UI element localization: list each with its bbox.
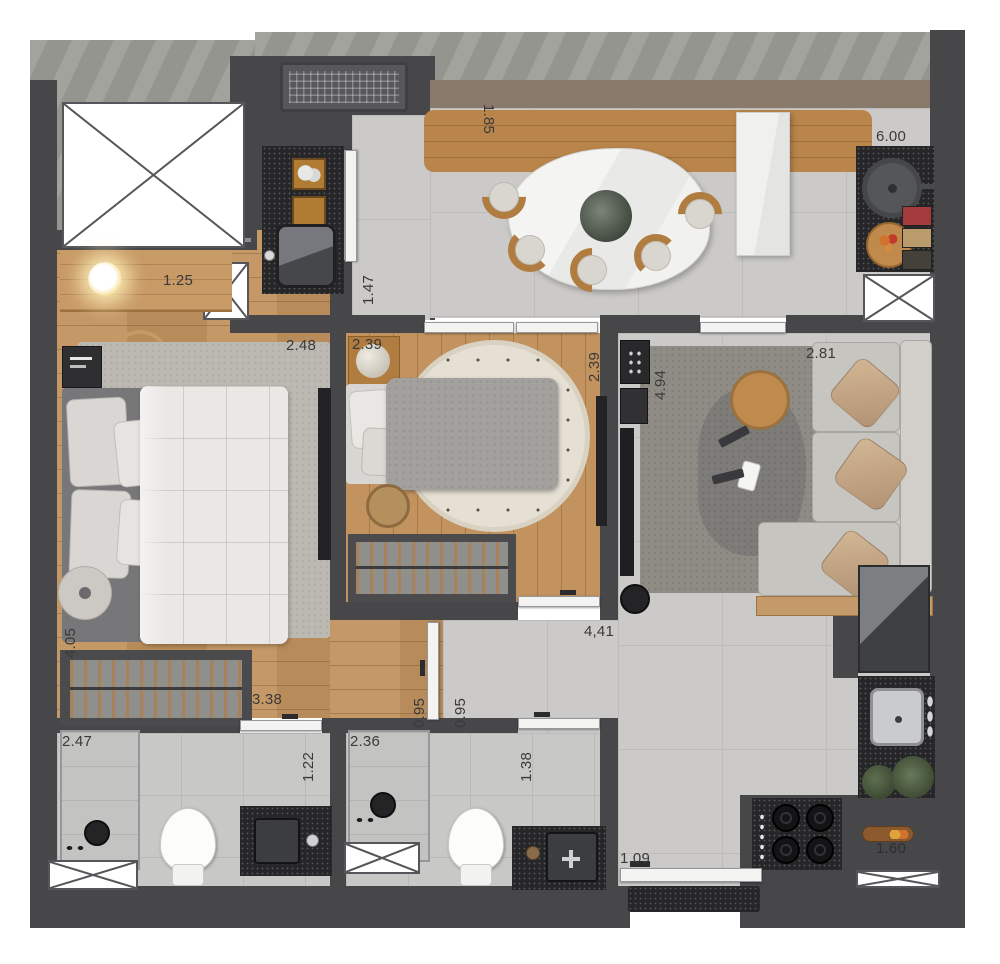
vanity2-soap <box>526 846 540 860</box>
fridge-mirror-cabinet <box>858 565 930 673</box>
shower-valves <box>64 844 86 852</box>
cooktop-burner <box>806 836 834 864</box>
media-console-box <box>620 340 650 384</box>
door-bathroom2 <box>518 718 600 729</box>
wall-hall-stub-top <box>425 602 443 620</box>
dim-bath1-width: 2.47 <box>62 733 92 750</box>
desk-lamp <box>88 262 122 296</box>
toilet-base <box>460 864 492 886</box>
dim-living-width: 2.81 <box>806 345 836 362</box>
door-handle <box>282 714 298 719</box>
door-bedroom2 <box>518 596 600 607</box>
toilet-base <box>172 864 204 886</box>
dining-chair <box>678 192 722 236</box>
door-service-corridor <box>345 150 357 262</box>
door-handle <box>420 660 425 676</box>
wardrobe-bedroom2 <box>348 534 516 602</box>
kitchen-window <box>856 870 940 888</box>
dim-dining-bench: 1.85 <box>480 104 497 134</box>
sink-drain <box>895 716 902 723</box>
living-tv-panel <box>620 428 634 576</box>
dim-bedroom1-length: 4.05 <box>62 628 79 658</box>
wall-living-top-left <box>618 315 700 333</box>
dining-chair <box>634 234 678 278</box>
duvet-fold <box>140 386 166 644</box>
cooktop-burner <box>772 836 800 864</box>
dim-kitchen-counter: 1.60 <box>876 840 906 857</box>
sliding-door-bedroom2-top <box>424 322 514 333</box>
dim-wardrobe: 3.38 <box>252 691 282 708</box>
dim-bedroom1-width: 2.48 <box>286 337 316 354</box>
entry-door <box>620 868 762 882</box>
desk-shelf <box>60 250 232 312</box>
door-handle <box>534 712 550 717</box>
single-bed-blanket <box>386 378 558 490</box>
dining-chair <box>570 248 614 292</box>
door-living-balcony <box>700 322 786 333</box>
dining-chair <box>482 175 526 219</box>
sliding-door-hall-top <box>516 322 598 333</box>
side-table-round <box>730 370 790 430</box>
nightstand-dark <box>62 346 102 388</box>
vent-grille <box>280 62 408 112</box>
dim-bath2-width: 2.36 <box>350 733 380 750</box>
bed1-duvet <box>140 386 288 644</box>
dim-bath2-door: 1.38 <box>518 752 535 782</box>
wardrobe-rail <box>356 566 508 569</box>
faucet-bar-v <box>569 850 573 868</box>
dim-bath1-door: 1.22 <box>300 752 317 782</box>
dim-service-door: 1.47 <box>360 275 377 305</box>
dim-hall-width-right: 0.95 <box>452 698 469 728</box>
chair-back <box>473 166 535 228</box>
door-hall-corridor <box>427 622 439 720</box>
wall-bottom-left <box>30 886 630 928</box>
bath1-window <box>48 860 138 890</box>
grill-handle <box>920 184 934 189</box>
laundry-faucet <box>264 250 275 261</box>
round-speaker <box>620 584 650 614</box>
jar-dark <box>902 250 932 270</box>
vanity1-faucet <box>306 834 319 847</box>
vanity2-faucet-cross <box>562 850 580 868</box>
jar-tan <box>902 228 932 248</box>
bedroom2-tv-panel <box>596 396 607 526</box>
floor-plan-canvas: 1.85 6.00 1.25 1.47 2.48 2.39 2.39 4.94 … <box>0 0 1000 964</box>
chair-back <box>634 234 678 278</box>
sink-faucet-knobs <box>926 694 934 740</box>
shower-valves <box>354 816 376 824</box>
kitchen-duct-shaft <box>863 274 935 322</box>
potted-plant <box>862 765 896 799</box>
cooktop-burner <box>772 804 800 832</box>
potted-plant <box>892 756 934 798</box>
condiment-jars <box>902 206 932 270</box>
door-bathroom1 <box>240 720 322 731</box>
entry-doormat <box>628 886 760 912</box>
vanity1-sink <box>254 818 300 864</box>
dim-entry-door: 1.09 <box>620 850 650 867</box>
chair-back <box>669 183 731 245</box>
wall-bedroom1-bedroom2 <box>330 315 346 620</box>
media-console-box <box>620 388 648 424</box>
dim-hall-length: 4,41 <box>584 623 614 640</box>
dim-living-length: 4.94 <box>652 370 669 400</box>
island-counter <box>736 112 790 256</box>
dining-chair <box>508 228 552 272</box>
dim-hall-width-left: 0.95 <box>411 698 428 728</box>
dim-desk: 1.25 <box>163 272 193 289</box>
nightstand-book <box>70 365 86 368</box>
bedroom1-tv-panel <box>318 388 331 560</box>
dim-bedroom2-length: 2.39 <box>586 352 603 382</box>
balcony-band <box>430 80 935 110</box>
kitchen-sink <box>870 688 924 746</box>
cooktop-burner <box>806 804 834 832</box>
laundry-items <box>297 163 321 185</box>
food-items <box>889 830 909 839</box>
shower-head <box>84 820 110 846</box>
dim-kitchen-run: 6.00 <box>876 128 906 145</box>
wardrobe-rail <box>70 687 242 690</box>
dim-bedroom2-width: 2.39 <box>352 336 382 353</box>
nightstand-book <box>70 357 92 360</box>
table-centerpiece-plant <box>580 190 632 242</box>
media-knobs <box>627 349 643 375</box>
tomatoes <box>874 230 904 260</box>
wall-right <box>930 30 965 928</box>
laundry-sink <box>276 224 336 288</box>
door-handle <box>560 590 576 595</box>
vent-grid <box>289 71 399 103</box>
bath2-window <box>344 842 420 874</box>
jar-red <box>902 206 932 226</box>
wardrobe-bedroom1 <box>60 650 252 726</box>
pendant-bulb <box>79 587 91 599</box>
elevator-shaft <box>62 102 245 248</box>
chair-back <box>561 239 623 301</box>
pendant-lamp <box>58 566 112 620</box>
cooktop-dots <box>758 812 766 860</box>
grill-knob <box>888 184 897 193</box>
chair-back <box>508 228 552 272</box>
wall-left <box>30 80 57 888</box>
shower-head <box>370 792 396 818</box>
wood-stool <box>366 484 410 528</box>
laundry-basket-1 <box>292 158 326 190</box>
